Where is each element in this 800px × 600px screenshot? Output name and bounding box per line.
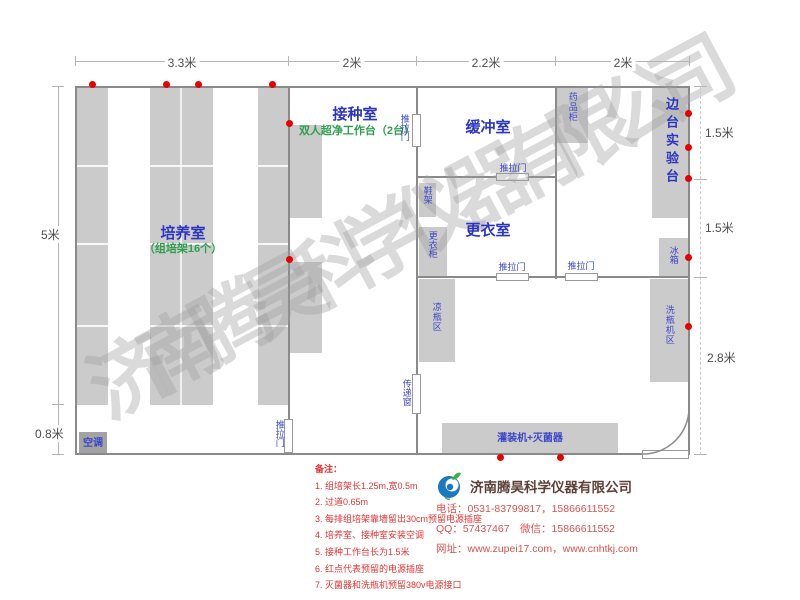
power-outlet-dot (685, 323, 692, 330)
dim-top-2: 2米 (340, 54, 365, 71)
label-filling-sterilizer: 灌装机+灭菌器 (497, 433, 563, 445)
power-outlet-dot (269, 81, 276, 88)
wall-changing-corridor (416, 276, 690, 278)
label-bottle-washer-area: 洗瓶机区 (664, 305, 675, 345)
power-outlet-dot (286, 120, 293, 127)
wall-left (75, 86, 77, 455)
label-sliding-door-4: 推拉门 (567, 261, 594, 272)
note-item: 7. 灭菌器和洗瓶机预留380v电源接口 (315, 578, 482, 591)
pass-window-symbol (412, 374, 421, 414)
note-item: 6. 红点代表预留的电源插座 (315, 562, 482, 575)
sliding-door-rightroom-corridor (565, 273, 598, 281)
company-website: 网址：www.zupei17.com，www.cnhtkj.com (436, 541, 638, 556)
label-wardrobe: 更衣柜 (427, 231, 438, 258)
room-label-side-bench: 边台实验台 (662, 97, 681, 187)
power-outlet-dot (497, 454, 504, 461)
label-pass-window: 传递窗 (401, 379, 412, 406)
label-sliding-door-2: 推拉门 (499, 163, 526, 174)
sliding-door-cultivation-inoculation (284, 419, 293, 453)
entrance-door-swing-arc (637, 402, 691, 456)
power-outlet-dot (685, 254, 692, 261)
room-label-buffer: 缓冲室 (465, 116, 510, 137)
label-sliding-door-1: 推拉门 (399, 114, 410, 141)
wall-changing-right (555, 86, 557, 279)
wall-right (688, 86, 690, 455)
wall-buffer-changing (416, 176, 557, 178)
room-label-changing: 更衣室 (465, 219, 510, 240)
label-sliding-door-5: 推拉门 (274, 420, 285, 447)
power-outlet-dot (89, 81, 96, 88)
dim-right-3: 2.8米 (704, 349, 739, 366)
dim-top-1: 3.3米 (165, 54, 200, 71)
label-shoe-rack: 鞋架 (422, 186, 433, 204)
power-outlet-dot (286, 256, 293, 263)
clean-bench-1 (290, 125, 322, 218)
wall-cultivation-inoculation (288, 86, 290, 455)
label-air-conditioner: 空调 (83, 438, 103, 450)
company-logo-icon (436, 470, 464, 500)
label-cool-bottle-area: 凉瓶区 (431, 302, 442, 332)
power-outlet-dot (195, 81, 202, 88)
label-sliding-door-3: 推拉门 (498, 262, 525, 273)
power-outlet-dot (557, 454, 564, 461)
dim-top-4: 2米 (611, 54, 636, 71)
dimension-line-left (58, 86, 59, 455)
dim-right-1: 1.5米 (702, 124, 737, 141)
dim-left-1: 5米 (38, 226, 63, 243)
room-sublabel-cultivation: （组培架16个） (144, 240, 222, 256)
company-name: 济南腾昊科学仪器有限公司 (470, 476, 632, 496)
wall-bottom (75, 453, 690, 455)
dim-right-2: 1.5米 (702, 219, 737, 236)
label-fridge: 冰箱 (668, 246, 679, 264)
sliding-door-buffer-changing (496, 173, 529, 181)
sliding-door-changing-corridor (496, 273, 529, 281)
room-label-inoculation: 接种室 (332, 103, 377, 124)
label-medicine-cabinet: 药品柜 (567, 92, 578, 122)
clean-bench-2 (290, 262, 322, 353)
culture-shelf-column-3 (258, 87, 289, 405)
power-outlet-dot (163, 81, 170, 88)
room-sublabel-inoculation: 双人超净工作台（2台） (299, 122, 415, 138)
company-qq-wechat: QQ：57437467 微信：15866611552 (436, 521, 615, 536)
company-phone: 电话：0531-83799817，15866611552 (436, 501, 615, 516)
dim-top-3: 2.2米 (469, 54, 504, 71)
dim-left-2: 0.8米 (32, 425, 67, 442)
dimension-line-right (700, 86, 702, 455)
power-outlet-dot (685, 144, 692, 151)
culture-shelf-column-1 (77, 87, 108, 405)
power-outlet-dot (685, 110, 692, 117)
power-outlet-dot (685, 175, 692, 182)
